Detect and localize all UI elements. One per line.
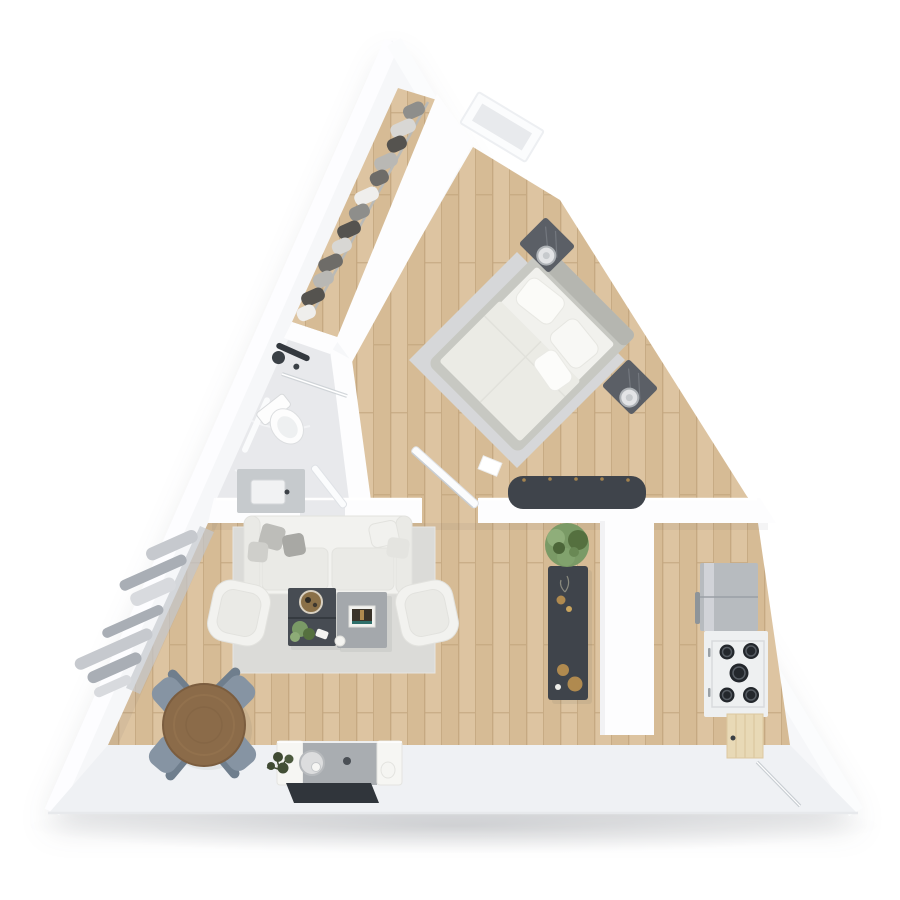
faucet — [285, 490, 290, 495]
decor-vase — [568, 677, 583, 692]
leaf — [278, 763, 289, 774]
tray-item — [313, 603, 317, 607]
pillow — [247, 541, 269, 563]
hook — [574, 477, 578, 481]
refrigerator — [695, 563, 758, 631]
sofa — [244, 516, 412, 594]
leaf — [553, 542, 565, 554]
hook — [626, 478, 630, 482]
white-bowl — [335, 636, 345, 646]
partition-edge-shadow — [600, 521, 605, 735]
round-speaker — [300, 751, 324, 775]
pillow — [281, 532, 306, 557]
decor-cup — [555, 684, 561, 690]
throw-pillow — [247, 541, 269, 563]
cooktop-counter — [704, 631, 768, 717]
speaker-knob — [312, 763, 321, 772]
vanity-sink — [251, 480, 285, 504]
throw-pillow — [281, 532, 306, 557]
media-console — [267, 741, 402, 785]
floorplan-svg — [0, 0, 900, 900]
wall-tv — [286, 783, 379, 803]
leaf — [303, 628, 315, 640]
console-disc — [343, 757, 351, 765]
leaf — [569, 547, 579, 557]
dining-table — [163, 684, 245, 766]
storage-bench — [508, 476, 646, 509]
floorplan-render — [0, 0, 900, 900]
potted-plant — [545, 523, 589, 567]
coffee-table-dark — [288, 588, 341, 650]
leaf — [285, 755, 294, 764]
fridge-handle — [695, 592, 700, 624]
leaf — [290, 632, 300, 642]
decor-bottle — [557, 596, 566, 605]
tray-item — [305, 597, 311, 603]
leaf — [273, 752, 283, 762]
entry-door-handle — [731, 736, 736, 741]
hook — [522, 478, 526, 482]
decor-vase — [557, 664, 569, 676]
photo-strip — [352, 621, 372, 624]
hook — [548, 477, 552, 481]
coffee-table-gray — [335, 592, 392, 652]
throw-pillow — [386, 537, 411, 560]
kitchen-partition-wall — [600, 521, 654, 735]
handle — [708, 688, 711, 697]
sideboard — [548, 566, 592, 704]
leaf — [267, 762, 275, 770]
handle — [708, 648, 711, 657]
photo-figure — [360, 610, 364, 620]
sofa-seat-cushion — [332, 548, 394, 590]
leaf — [568, 530, 588, 550]
round-tray — [300, 591, 322, 613]
vanity — [237, 469, 305, 513]
hook — [600, 477, 604, 481]
decor-bottle — [566, 606, 572, 612]
white-vase — [381, 762, 395, 778]
pillow — [386, 537, 411, 560]
